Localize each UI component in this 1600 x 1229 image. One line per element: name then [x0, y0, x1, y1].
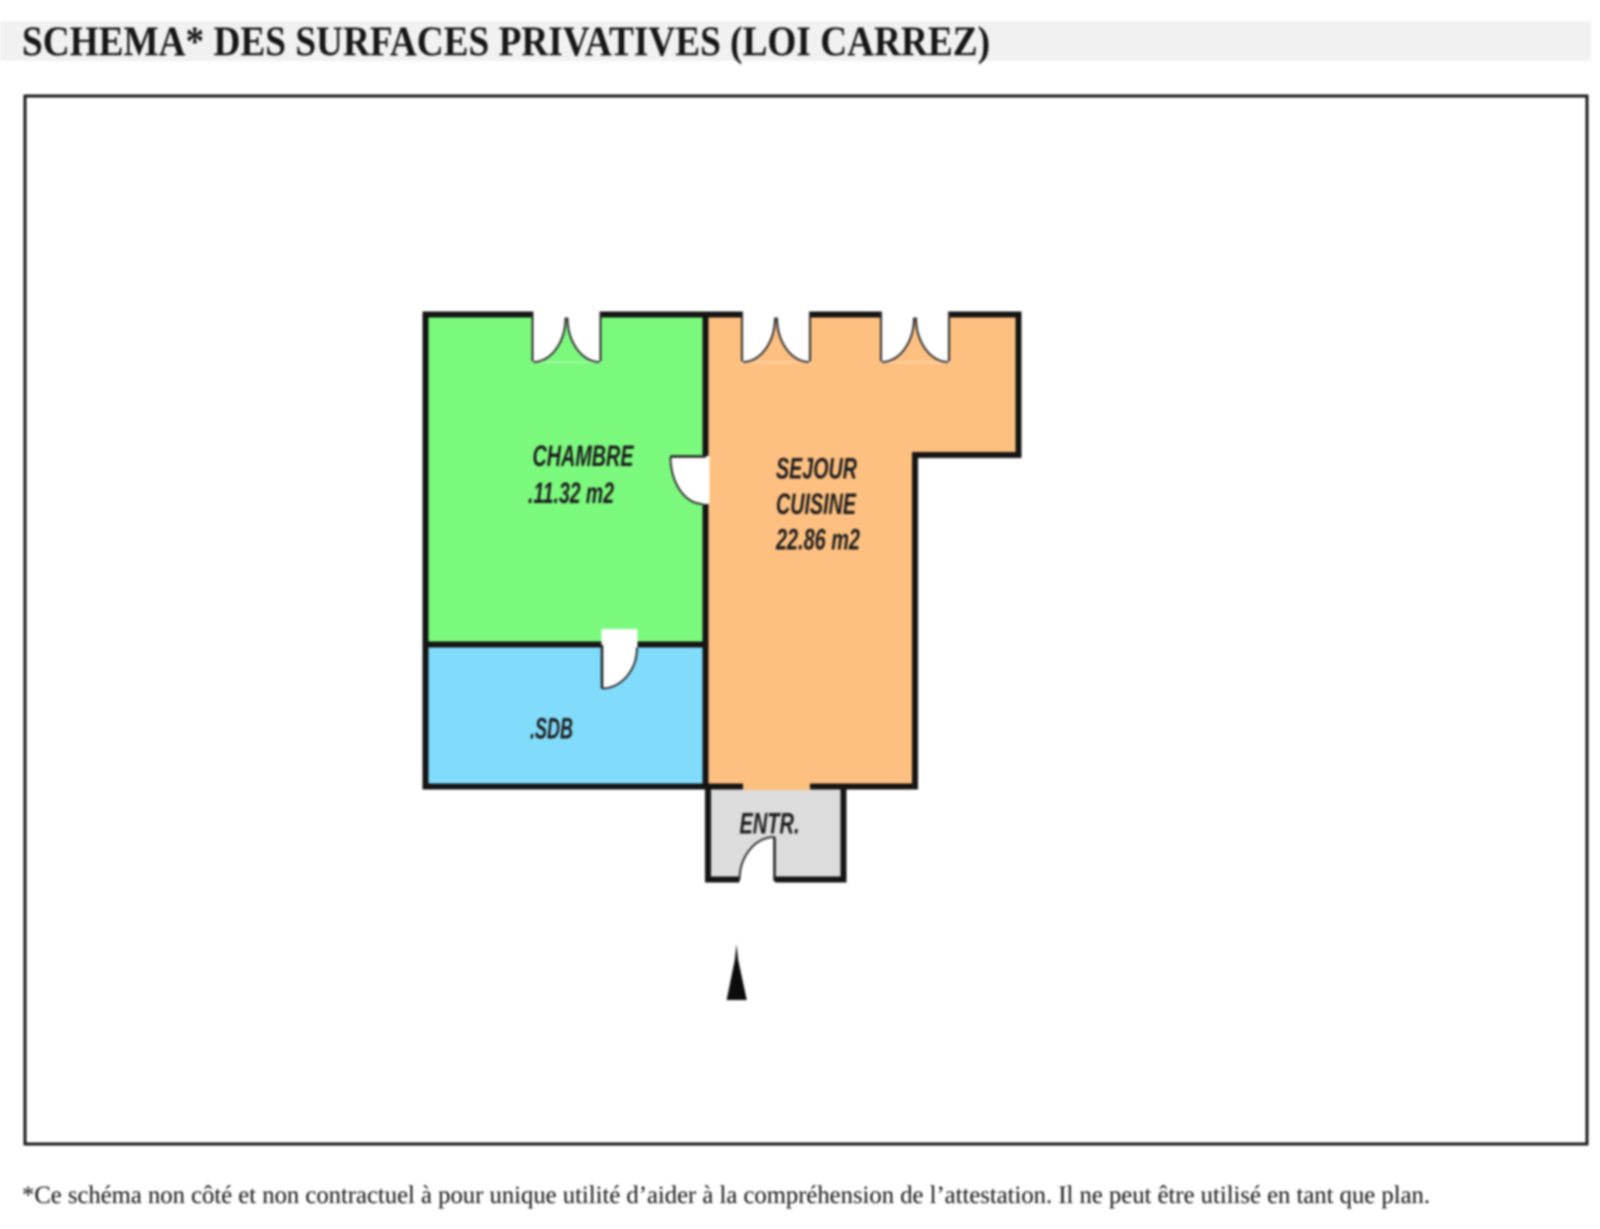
- svg-text:.11.32 m2: .11.32 m2: [528, 477, 614, 510]
- svg-text:*Ce schéma non côté et non con: *Ce schéma non côté et non contractuel à…: [22, 1182, 1430, 1209]
- svg-text:CUISINE: CUISINE: [776, 488, 857, 521]
- svg-text:22.86 m2: 22.86 m2: [775, 524, 860, 557]
- svg-text:ENTR.: ENTR.: [740, 808, 800, 841]
- svg-text:SEJOUR: SEJOUR: [776, 453, 857, 486]
- svg-text:.SDB: .SDB: [530, 713, 573, 746]
- svg-text:CHAMBRE: CHAMBRE: [533, 440, 635, 473]
- svg-text:SCHEMA* DES SURFACES PRIVATIVE: SCHEMA* DES SURFACES PRIVATIVES (LOI CAR…: [22, 20, 990, 66]
